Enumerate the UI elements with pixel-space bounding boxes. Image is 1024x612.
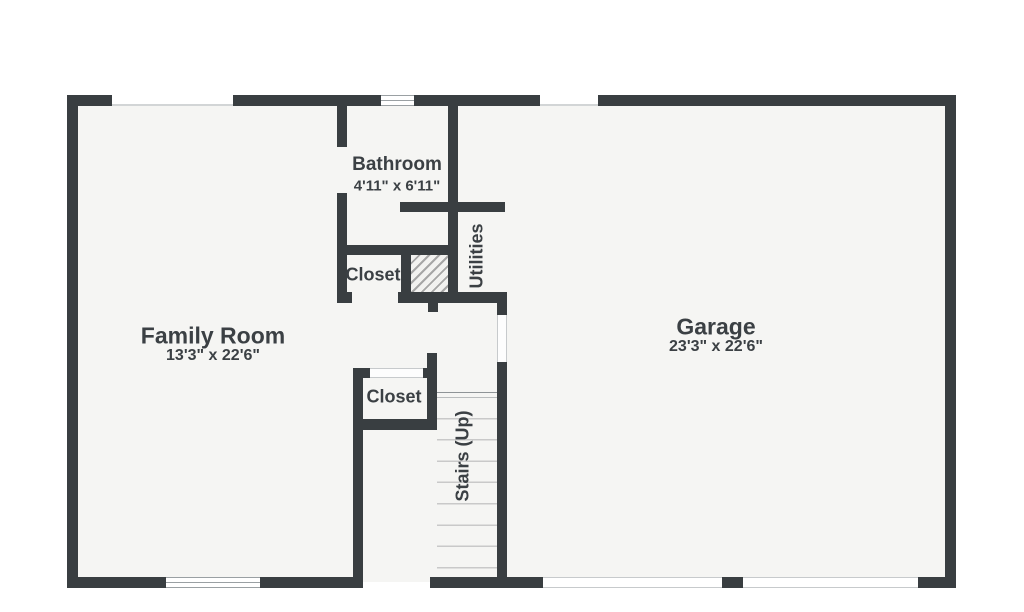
stairs-label: Stairs (Up) xyxy=(453,410,474,501)
wall-segment xyxy=(353,368,363,577)
wall-segment xyxy=(497,303,507,315)
wall-segment xyxy=(398,292,507,303)
window xyxy=(112,95,233,106)
window-cap xyxy=(160,577,166,588)
family-room-label: Family Room xyxy=(141,323,285,350)
closet-lower-label: Closet xyxy=(366,387,421,408)
garage-door xyxy=(543,577,722,588)
window xyxy=(160,577,266,588)
wall-segment xyxy=(266,577,363,588)
window-cap xyxy=(375,95,381,106)
wall-segment xyxy=(945,95,956,588)
wall-segment xyxy=(400,202,505,212)
wall-segment xyxy=(420,95,540,106)
wall-segment xyxy=(448,95,458,303)
equipment-hatch xyxy=(411,255,448,292)
wall-segment xyxy=(337,95,347,147)
bathroom-label: Bathroom xyxy=(352,154,442,176)
wall-segment xyxy=(497,362,507,577)
wall-segment xyxy=(233,95,375,106)
family-room-dimensions: 13'3" x 22'6" xyxy=(166,347,260,365)
closet-upper-label: Closet xyxy=(345,265,400,286)
garage-label: Garage xyxy=(676,314,755,341)
wall-segment xyxy=(598,95,956,106)
wall-segment xyxy=(67,95,78,588)
wall-segment xyxy=(918,577,956,588)
door-opening xyxy=(497,315,507,362)
floor-plan: Bathroom 4'11" x 6'11" Closet Utilities … xyxy=(0,0,1024,612)
wall-segment xyxy=(353,419,437,430)
garage-door xyxy=(743,577,918,588)
wall-segment xyxy=(337,292,352,303)
garage-dimensions: 23'3" x 22'6" xyxy=(669,338,763,356)
wall-segment xyxy=(430,577,543,588)
wall-segment xyxy=(722,577,743,588)
wall-segment xyxy=(337,245,458,255)
utilities-label: Utilities xyxy=(467,223,488,288)
wall-segment xyxy=(353,368,370,378)
wall-segment xyxy=(428,301,438,312)
window xyxy=(540,95,598,106)
window-cap xyxy=(414,95,420,106)
door-opening xyxy=(370,368,423,378)
bathroom-dimensions: 4'11" x 6'11" xyxy=(354,178,440,195)
wall-segment xyxy=(67,577,160,588)
